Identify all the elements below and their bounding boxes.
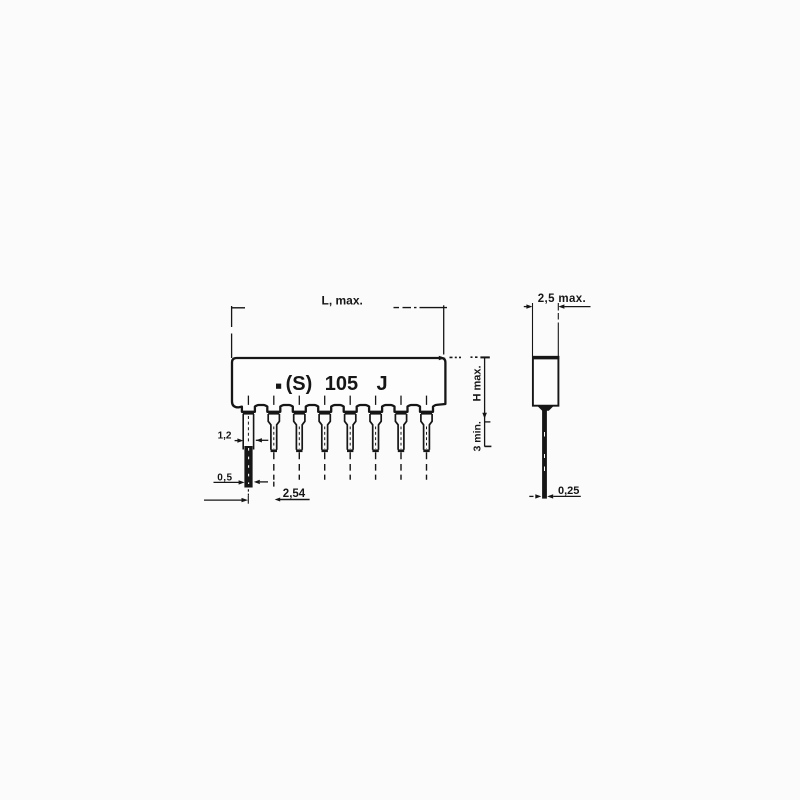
- svg-text:0,5: 0,5: [217, 472, 232, 483]
- svg-text:105: 105: [325, 373, 358, 395]
- svg-text:0,25: 0,25: [558, 485, 579, 497]
- svg-text:H max.: H max.: [471, 365, 483, 401]
- svg-text:J: J: [377, 373, 388, 395]
- svg-text:2,5 max.: 2,5 max.: [538, 293, 586, 305]
- svg-text:1,2: 1,2: [218, 431, 232, 442]
- svg-text:3 min.: 3 min.: [471, 421, 483, 451]
- svg-text:L, max.: L, max.: [322, 294, 363, 308]
- svg-text:(S): (S): [286, 373, 313, 395]
- svg-text:2,54: 2,54: [283, 488, 306, 500]
